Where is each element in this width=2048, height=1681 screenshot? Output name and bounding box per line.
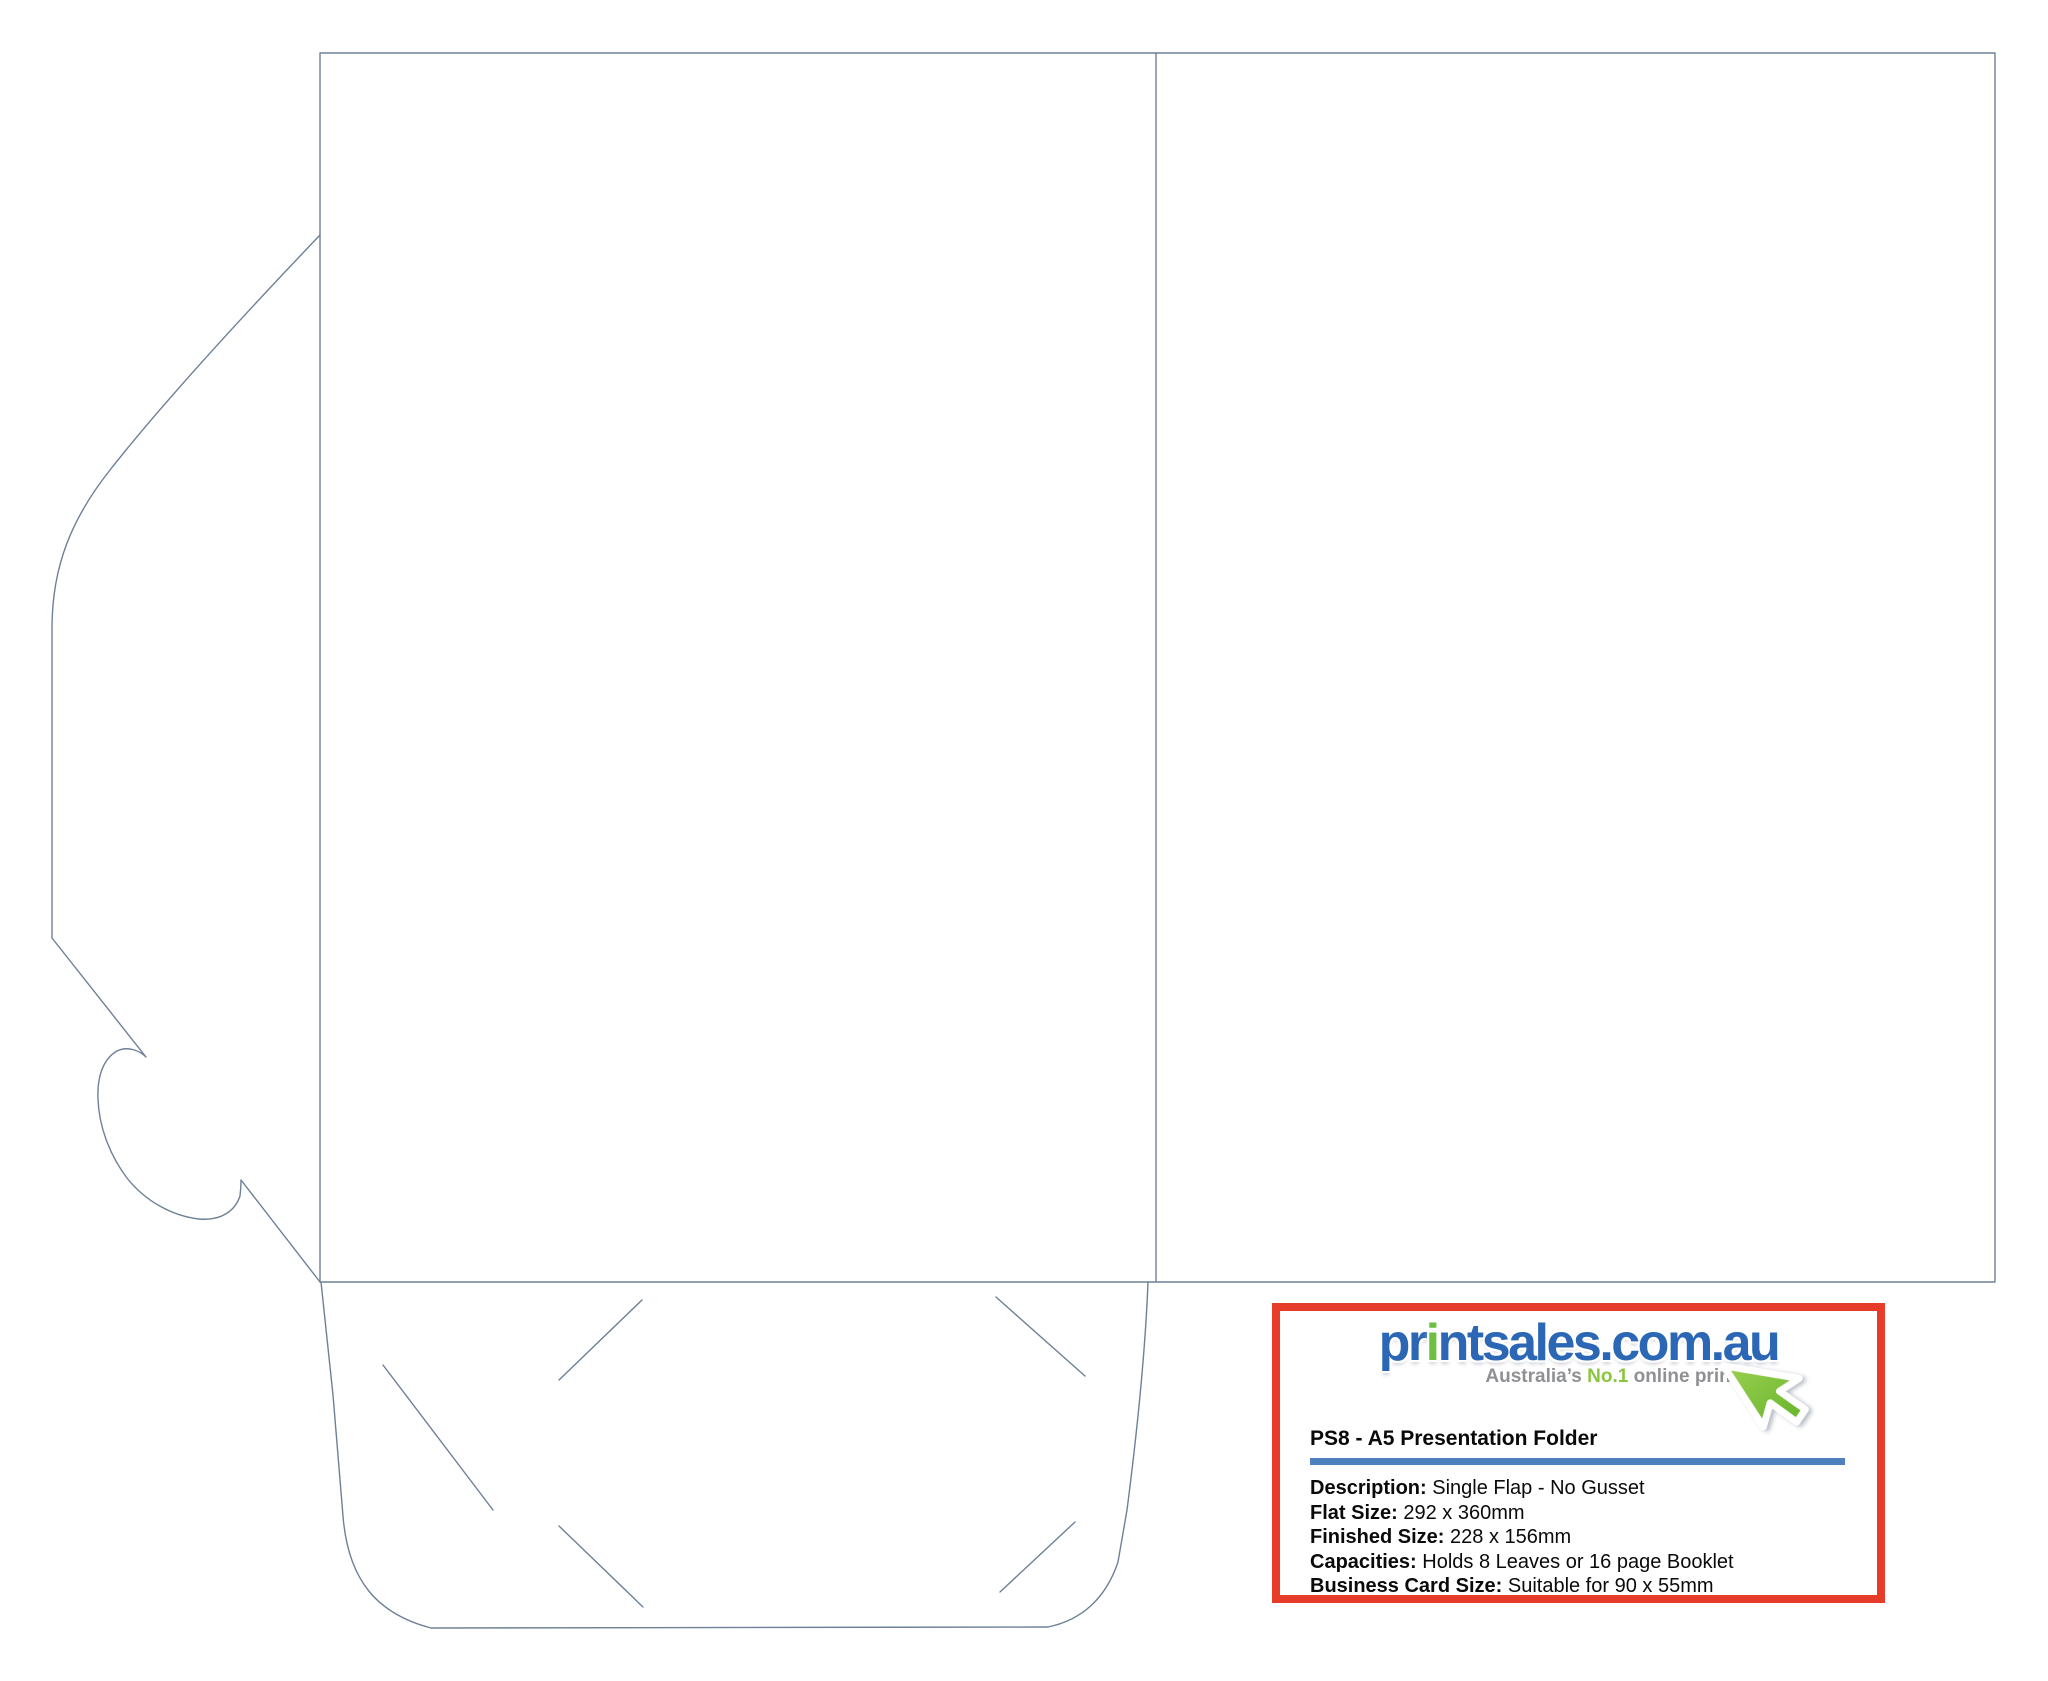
logo-text-pr: pr bbox=[1379, 1314, 1426, 1372]
spec-value: Holds 8 Leaves or 16 page Booklet bbox=[1417, 1551, 1734, 1573]
folder-body-outline bbox=[320, 53, 1995, 1282]
card-slit-lower-right bbox=[1000, 1522, 1075, 1592]
product-title: PS8 - A5 Presentation Folder bbox=[1310, 1427, 1847, 1451]
card-slit-left bbox=[383, 1365, 493, 1510]
logo-text-rest: ntsales.com.au bbox=[1438, 1314, 1779, 1372]
logo-text-green-i: i bbox=[1426, 1314, 1438, 1372]
page-canvas: printsales.com.au Australia’s No.1 onlin… bbox=[0, 0, 2048, 1681]
tagline-prefix: Australia’s bbox=[1485, 1366, 1587, 1387]
tagline-suffix: online printer bbox=[1628, 1366, 1755, 1387]
spec-value: Suitable for 90 x 55mm bbox=[1502, 1575, 1713, 1597]
spec-info-box: printsales.com.au Australia’s No.1 onlin… bbox=[1272, 1303, 1885, 1603]
spec-value: Single Flap - No Gusset bbox=[1427, 1477, 1645, 1499]
printsales-logo: printsales.com.au Australia’s No.1 onlin… bbox=[1280, 1313, 1877, 1417]
spec-row-business-card: Business Card Size: Suitable for 90 x 55… bbox=[1310, 1574, 1847, 1599]
logo-tagline: Australia’s No.1 online printer bbox=[1280, 1366, 1877, 1388]
spec-list: Description: Single Flap - No Gusset Fla… bbox=[1310, 1476, 1847, 1599]
card-slit-upper-left bbox=[559, 1300, 642, 1380]
spec-row-description: Description: Single Flap - No Gusset bbox=[1310, 1476, 1847, 1501]
pocket-flap-outline bbox=[321, 1282, 1148, 1628]
spec-value: 228 x 156mm bbox=[1444, 1526, 1571, 1548]
spec-label: Business Card Size: bbox=[1310, 1575, 1502, 1597]
spec-label: Flat Size: bbox=[1310, 1502, 1398, 1524]
spec-row-capacities: Capacities: Holds 8 Leaves or 16 page Bo… bbox=[1310, 1550, 1847, 1575]
spec-value: 292 x 360mm bbox=[1398, 1502, 1525, 1524]
card-slit-upper-right bbox=[996, 1297, 1085, 1376]
spec-row-flat-size: Flat Size: 292 x 360mm bbox=[1310, 1501, 1847, 1526]
spec-label: Capacities: bbox=[1310, 1551, 1417, 1573]
spec-row-finished-size: Finished Size: 228 x 156mm bbox=[1310, 1525, 1847, 1550]
tagline-no1: No.1 bbox=[1587, 1366, 1628, 1387]
left-flap-outline bbox=[52, 235, 320, 1282]
printsales-logo-text: printsales.com.au bbox=[1280, 1313, 1877, 1373]
spec-label: Description: bbox=[1310, 1477, 1427, 1499]
spec-label: Finished Size: bbox=[1310, 1526, 1444, 1548]
title-divider bbox=[1310, 1458, 1845, 1465]
card-slit-lower-left bbox=[559, 1526, 643, 1607]
